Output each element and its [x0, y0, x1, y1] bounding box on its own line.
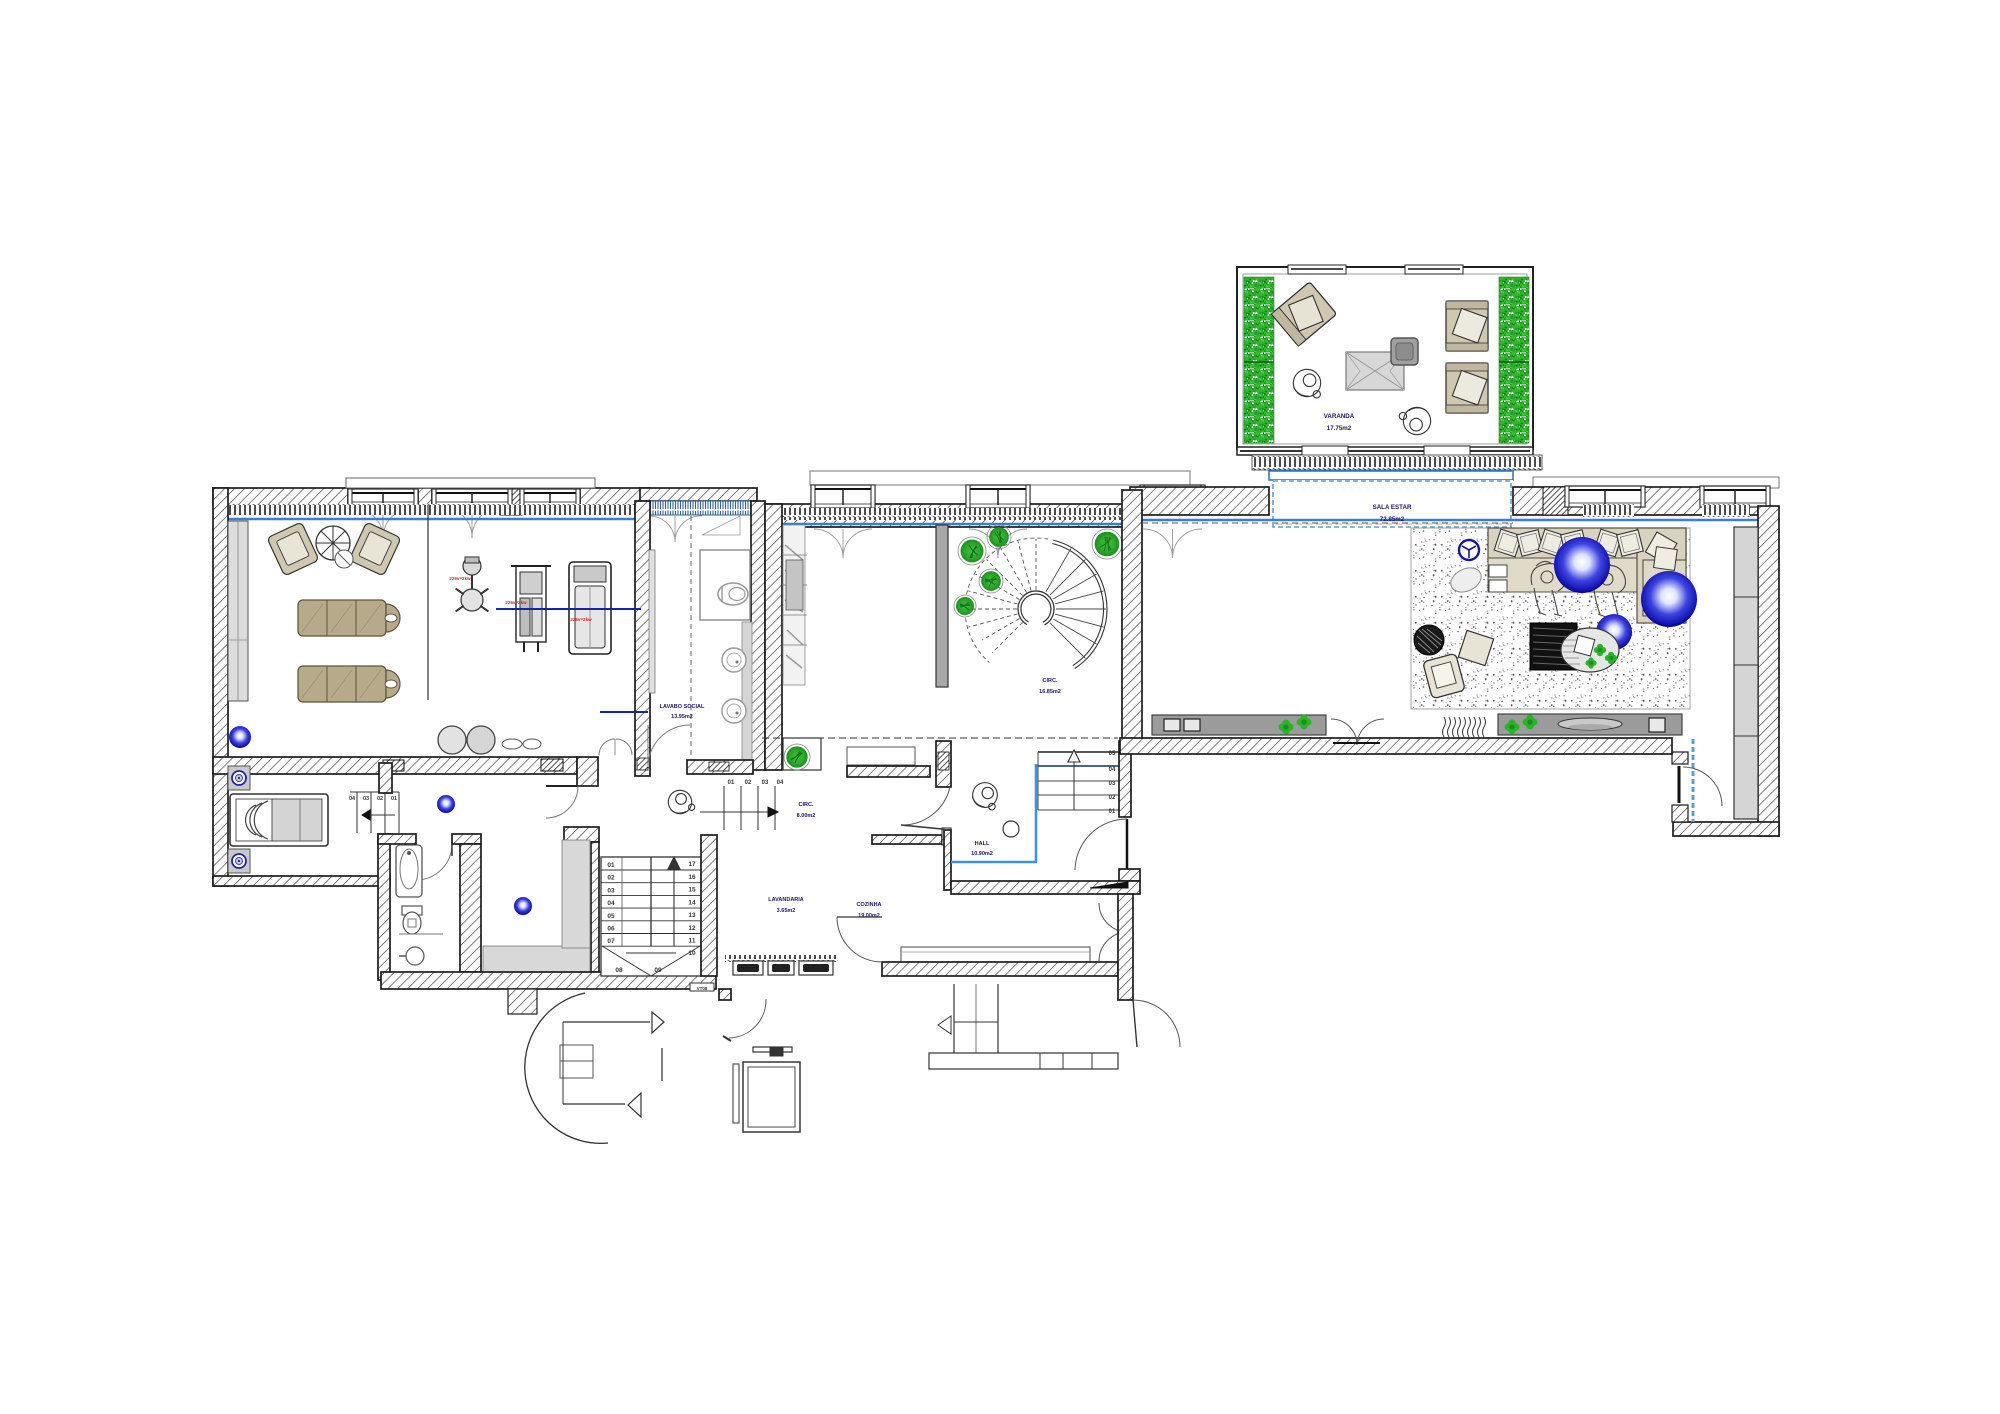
svg-text:05: 05 — [607, 913, 615, 920]
svg-text:03: 03 — [762, 780, 769, 786]
svg-text:04: 04 — [1109, 767, 1116, 773]
svg-text:17: 17 — [688, 861, 696, 868]
svg-text:HALL: HALL — [975, 841, 990, 847]
svg-text:03: 03 — [1109, 781, 1116, 787]
svg-text:05: 05 — [1109, 751, 1116, 757]
svg-text:01: 01 — [607, 862, 615, 869]
svg-text:02: 02 — [745, 780, 752, 786]
svg-text:06: 06 — [607, 926, 615, 933]
svg-text:COZINHA: COZINHA — [856, 902, 881, 908]
svg-text:07: 07 — [607, 938, 615, 945]
svg-text:225v=2kw: 225v=2kw — [449, 576, 471, 581]
svg-text:72.85m2: 72.85m2 — [1380, 516, 1405, 523]
svg-text:14: 14 — [688, 899, 696, 906]
svg-text:13: 13 — [688, 912, 696, 919]
svg-text:01: 01 — [728, 780, 735, 786]
svg-text:01: 01 — [1109, 809, 1116, 815]
svg-text:16: 16 — [688, 874, 696, 881]
svg-text:03: 03 — [607, 887, 615, 894]
svg-text:12: 12 — [688, 925, 696, 932]
svg-text:VT08: VT08 — [697, 986, 708, 991]
svg-text:02: 02 — [377, 796, 383, 802]
svg-text:SALA ESTAR: SALA ESTAR — [1373, 504, 1412, 511]
svg-text:13.95m2: 13.95m2 — [671, 714, 693, 720]
svg-text:CIRC.: CIRC. — [1043, 678, 1058, 684]
svg-text:8.00m2: 8.00m2 — [797, 813, 816, 819]
svg-text:225v=3kw: 225v=3kw — [505, 600, 527, 605]
svg-text:10.90m2: 10.90m2 — [971, 851, 993, 857]
svg-text:15: 15 — [688, 887, 696, 894]
svg-text:11: 11 — [689, 938, 696, 945]
svg-text:LAVANDARIA: LAVANDARIA — [768, 897, 804, 903]
svg-text:04: 04 — [607, 900, 615, 907]
svg-text:08: 08 — [615, 967, 623, 974]
svg-text:04: 04 — [777, 780, 784, 786]
svg-text:04: 04 — [349, 796, 356, 802]
svg-text:01: 01 — [391, 796, 397, 802]
svg-text:19.00m2: 19.00m2 — [858, 913, 880, 919]
svg-text:3.65m2: 3.65m2 — [777, 908, 796, 914]
svg-text:16.85m2: 16.85m2 — [1039, 689, 1061, 695]
svg-text:CIRC.: CIRC. — [799, 802, 814, 808]
svg-text:09: 09 — [654, 967, 662, 974]
svg-text:02: 02 — [1109, 795, 1116, 801]
svg-text:LAVABO SOCIAL: LAVABO SOCIAL — [660, 704, 705, 710]
svg-text:225v=2kw: 225v=2kw — [570, 617, 592, 622]
svg-text:17.75m2: 17.75m2 — [1327, 425, 1352, 432]
svg-text:02: 02 — [607, 875, 615, 882]
svg-text:VARANDA: VARANDA — [1324, 413, 1355, 420]
svg-text:03: 03 — [363, 796, 369, 802]
